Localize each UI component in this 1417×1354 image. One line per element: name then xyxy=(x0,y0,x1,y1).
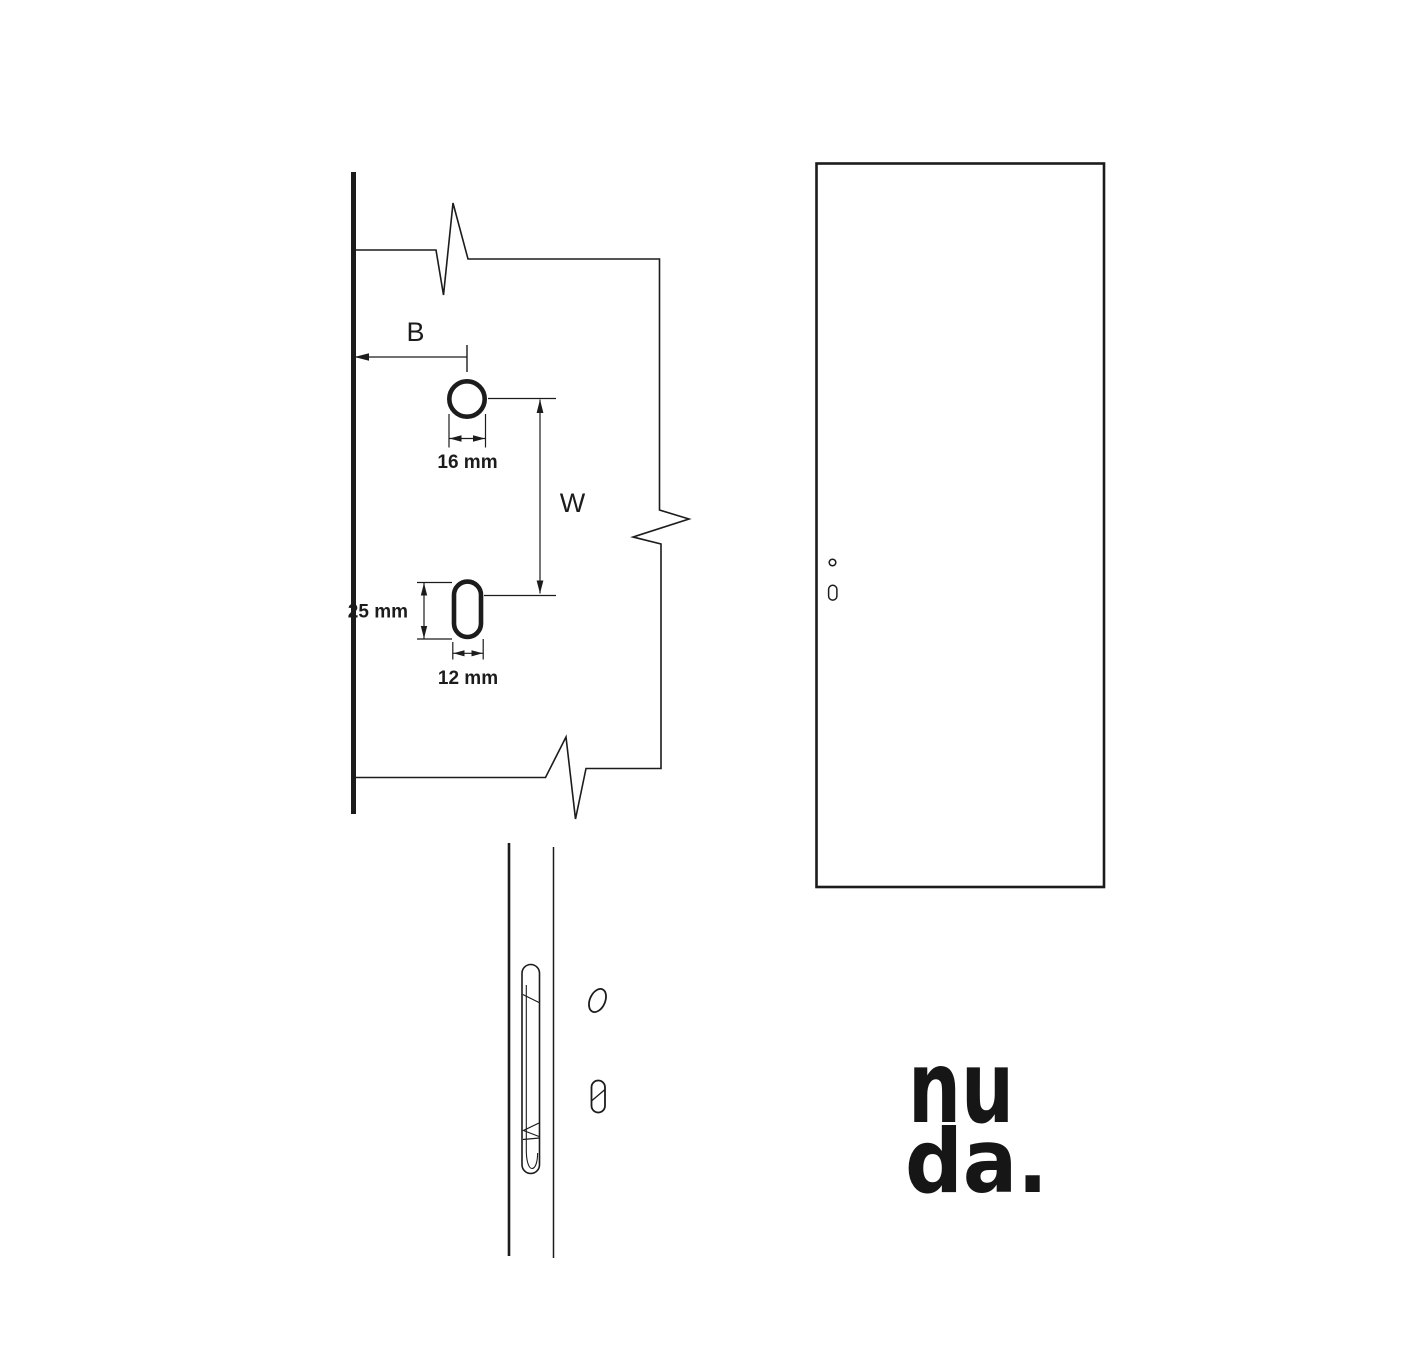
dimension-w-label: W xyxy=(560,488,586,518)
dimension-12mm-arrow-right xyxy=(472,650,483,656)
recessed-handle-slot xyxy=(522,965,540,1174)
dimension-b-label: B xyxy=(406,317,424,347)
dimension-12mm: 12 mm xyxy=(438,639,498,689)
dimension-w-arrow-down xyxy=(537,581,544,594)
edge-round-hole xyxy=(586,986,610,1014)
door-oblong-hole xyxy=(829,585,837,600)
edge-oblong-hole xyxy=(592,1081,606,1113)
edge-oblong-hole-outline xyxy=(592,1081,606,1113)
dimension-25mm: 25 mm xyxy=(348,583,452,640)
door-front-view xyxy=(817,164,1105,888)
dimension-12mm-arrow-left xyxy=(453,650,464,656)
panel-outline-with-breaks xyxy=(353,203,689,819)
drilling-template-view: B 16 mm W xyxy=(348,172,689,819)
dimension-16mm-arrow-right xyxy=(473,435,485,441)
slot-bottom-line xyxy=(523,1138,540,1140)
dimension-25mm-arrow-down xyxy=(421,626,427,639)
dimension-16mm: 16 mm xyxy=(437,414,497,473)
door-edge-view xyxy=(509,843,609,1258)
door-panel xyxy=(817,164,1105,888)
dimension-16mm-arrow-left xyxy=(450,435,462,441)
dimension-w: W xyxy=(484,399,586,596)
dimension-b-arrow xyxy=(355,353,370,361)
product-dimension-sheet: B 16 mm W xyxy=(0,0,1417,1354)
dimension-b: B xyxy=(355,317,468,372)
dimension-25mm-arrow-up xyxy=(421,583,427,596)
edge-oblong-hole-diagonal xyxy=(592,1090,605,1101)
oblong-slot xyxy=(454,582,481,637)
door-round-hole xyxy=(829,559,836,566)
round-hole xyxy=(449,381,484,416)
slot-top-diagonal xyxy=(523,995,539,1003)
dimension-25mm-label: 25 mm xyxy=(348,602,408,623)
dimension-w-arrow-up xyxy=(537,400,544,414)
dimension-16mm-label: 16 mm xyxy=(437,452,497,473)
brand-logo: nu da. xyxy=(905,1029,1048,1213)
diagram-svg: B 16 mm W xyxy=(0,0,1417,1354)
dimension-12mm-label: 12 mm xyxy=(438,668,498,689)
logo-line-2: da. xyxy=(905,1110,1048,1213)
slot-inner-depth-line xyxy=(526,985,537,1169)
